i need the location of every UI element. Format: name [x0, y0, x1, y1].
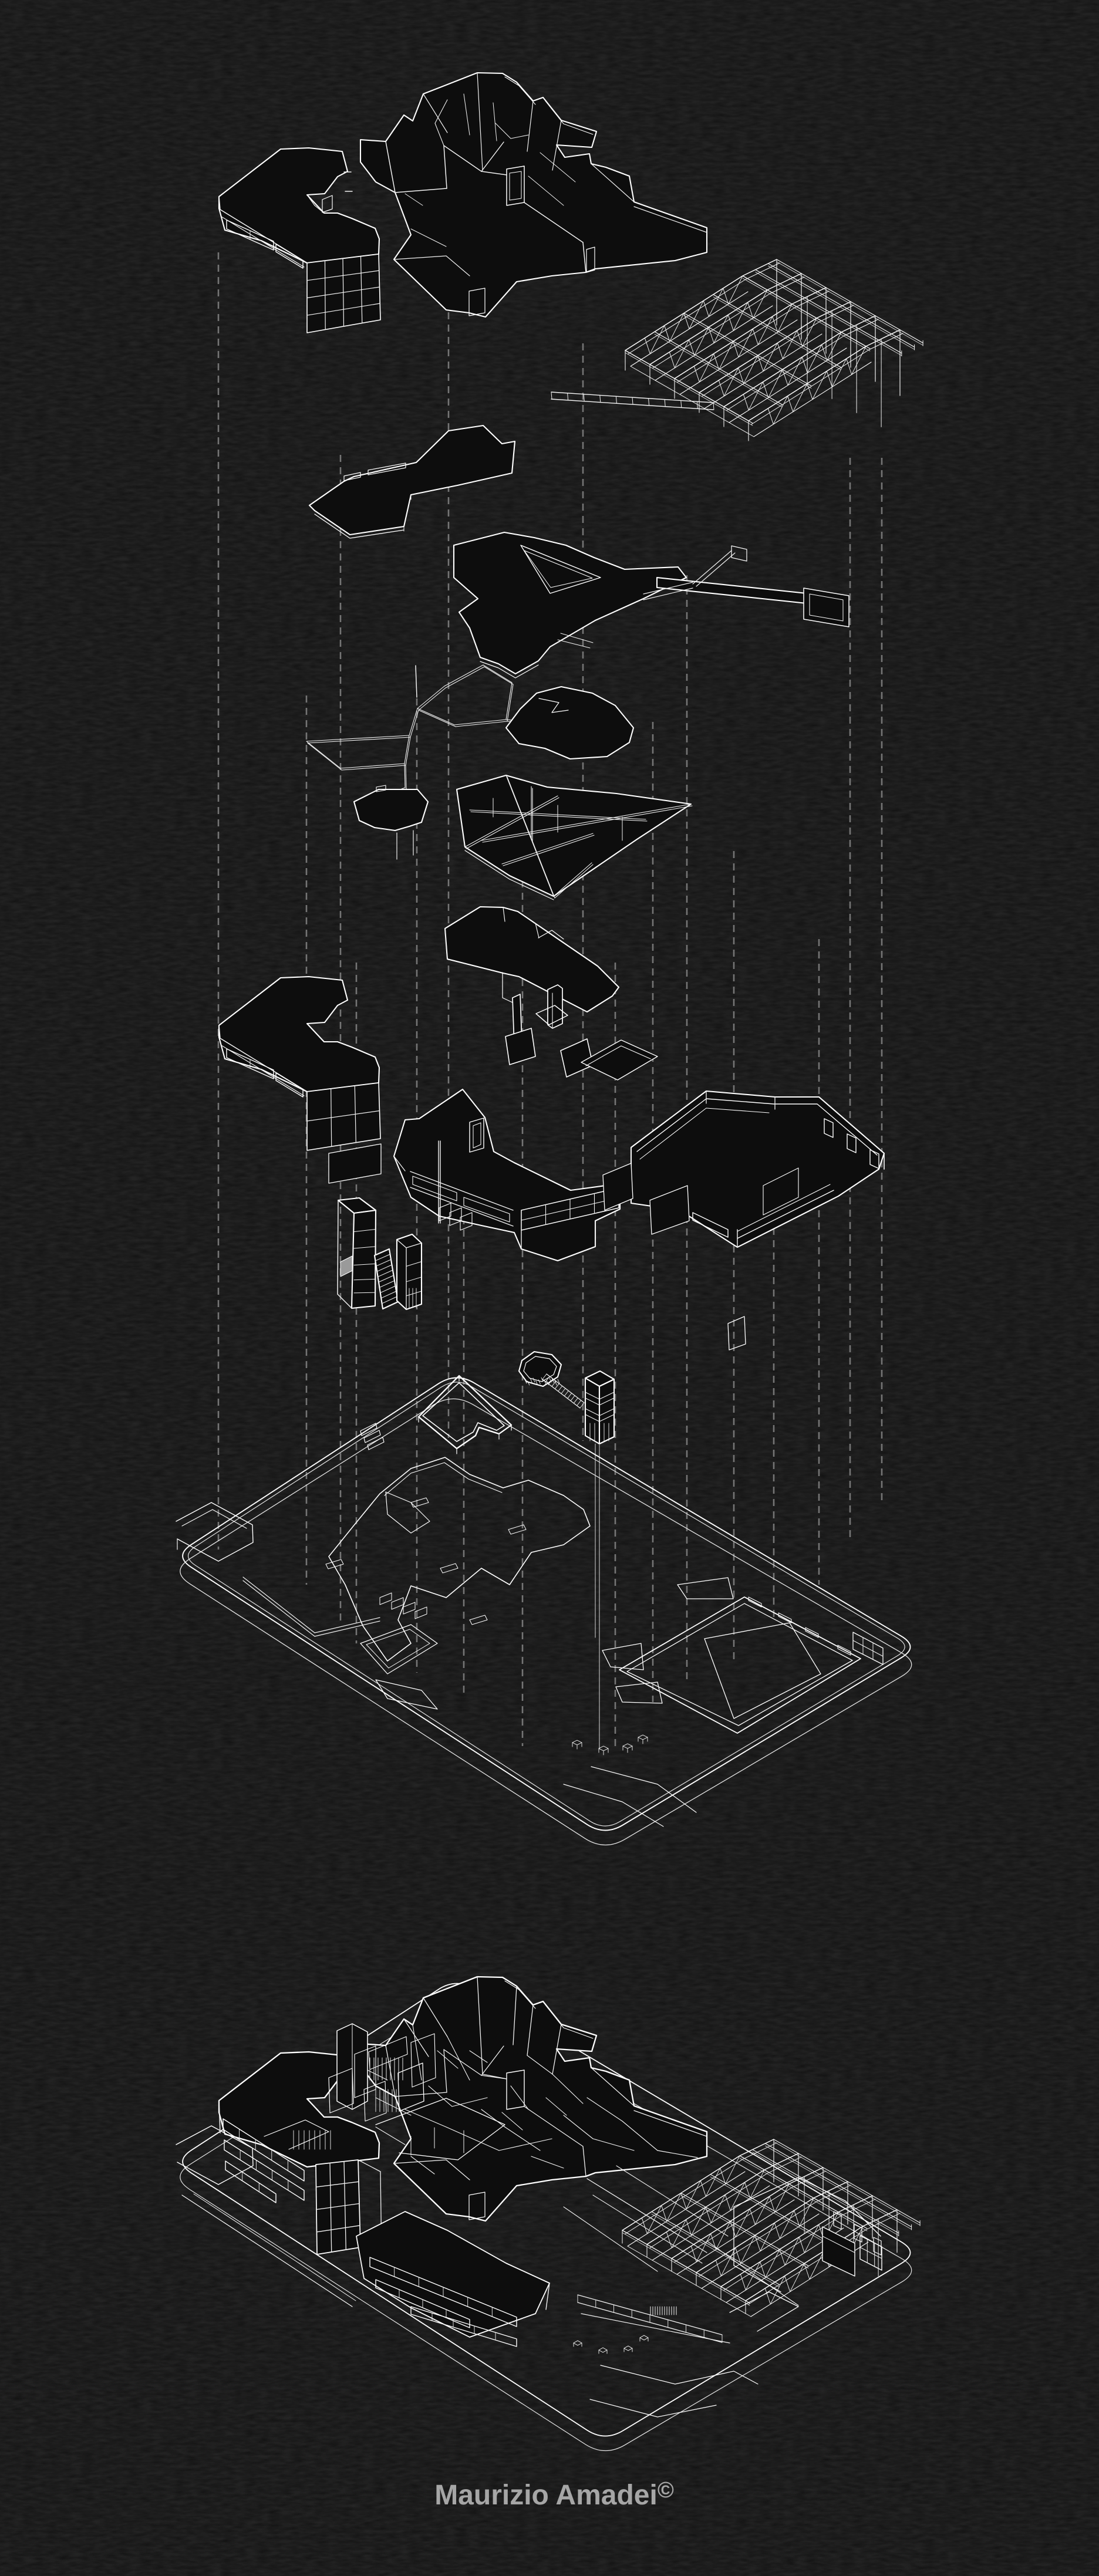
svg-text:Maurizio Amadei©: Maurizio Amadei©: [434, 2478, 674, 2511]
